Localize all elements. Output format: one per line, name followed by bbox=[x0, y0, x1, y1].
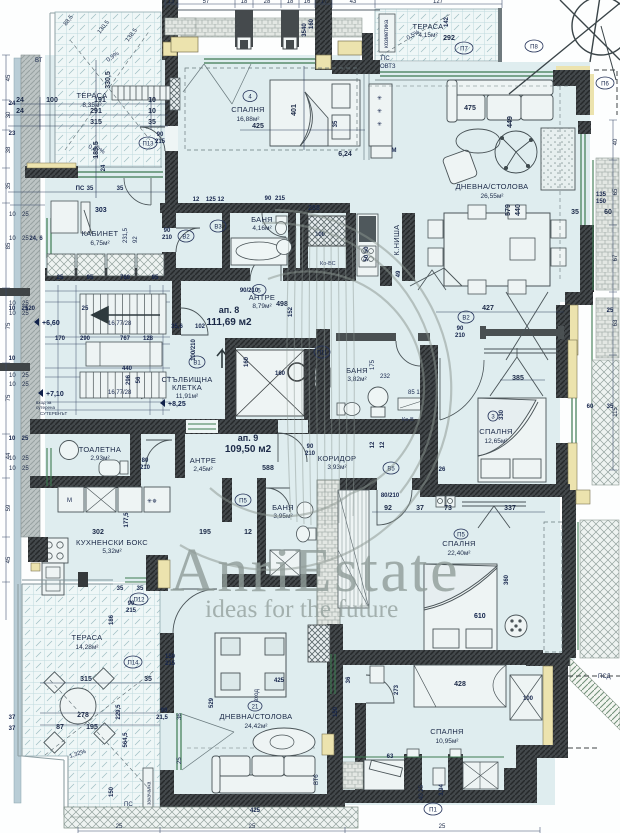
svg-text:35: 35 bbox=[571, 209, 579, 216]
svg-text:40: 40 bbox=[613, 138, 619, 145]
svg-text:23: 23 bbox=[9, 131, 16, 137]
svg-text:288: 288 bbox=[308, 205, 320, 212]
svg-text:3,94: 3,94 bbox=[439, 784, 445, 796]
svg-text:80/210: 80/210 bbox=[381, 493, 400, 499]
svg-text:10: 10 bbox=[148, 97, 156, 104]
svg-text:63: 63 bbox=[387, 754, 394, 760]
svg-text:292: 292 bbox=[443, 35, 455, 42]
svg-text:ПСД: ПСД bbox=[598, 674, 611, 680]
svg-text:ideas for the future: ideas for the future bbox=[205, 594, 398, 623]
svg-text:3540: 3540 bbox=[302, 23, 308, 37]
svg-text:152: 152 bbox=[288, 306, 294, 317]
svg-text:175: 175 bbox=[370, 359, 376, 370]
svg-text:21,5: 21,5 bbox=[156, 715, 168, 721]
svg-text:100: 100 bbox=[523, 696, 534, 702]
svg-text:92: 92 bbox=[384, 505, 392, 512]
svg-text:35: 35 bbox=[148, 119, 156, 126]
svg-text:767: 767 bbox=[120, 336, 131, 342]
svg-text:П8: П8 bbox=[530, 45, 538, 51]
svg-text:✳: ✳ bbox=[377, 95, 382, 102]
svg-text:475: 475 bbox=[464, 105, 476, 112]
svg-text:579: 579 bbox=[505, 204, 512, 216]
svg-text:8,79м²: 8,79м² bbox=[252, 303, 272, 310]
svg-text:25: 25 bbox=[22, 382, 29, 388]
svg-text:25: 25 bbox=[249, 824, 256, 830]
svg-text:П13: П13 bbox=[143, 142, 155, 148]
svg-text:28: 28 bbox=[264, 0, 271, 5]
svg-text:330: 330 bbox=[499, 409, 505, 420]
svg-text:186: 186 bbox=[109, 614, 115, 625]
svg-text:49: 49 bbox=[396, 270, 402, 277]
svg-text:425: 425 bbox=[250, 808, 261, 814]
svg-text:П1: П1 bbox=[429, 808, 437, 814]
svg-text:588: 588 bbox=[262, 465, 274, 472]
svg-text:4,15м²: 4,15м² bbox=[418, 32, 438, 39]
svg-text:10: 10 bbox=[9, 373, 16, 379]
svg-text:✳: ✳ bbox=[377, 121, 382, 128]
svg-text:✳✵: ✳✵ bbox=[147, 498, 157, 505]
svg-text:360: 360 bbox=[504, 574, 510, 585]
svg-text:Ко-ВС: Ко-ВС bbox=[320, 261, 336, 267]
svg-text:5,32м²: 5,32м² bbox=[102, 548, 122, 555]
svg-text:24, 6: 24, 6 bbox=[29, 236, 43, 242]
svg-text:6,75м²: 6,75м² bbox=[90, 240, 110, 247]
svg-text:425: 425 bbox=[274, 678, 285, 684]
svg-text:3,93м²: 3,93м² bbox=[327, 464, 347, 471]
svg-text:12: 12 bbox=[244, 529, 252, 536]
svg-text:П14: П14 bbox=[128, 661, 140, 667]
svg-text:290: 290 bbox=[80, 336, 91, 342]
svg-text:610: 610 bbox=[474, 613, 486, 620]
svg-text:ап. 8: ап. 8 bbox=[219, 305, 239, 315]
svg-text:215: 215 bbox=[275, 196, 286, 202]
svg-text:+6,60: +6,60 bbox=[42, 320, 60, 327]
svg-text:440: 440 bbox=[122, 366, 133, 372]
svg-text:273: 273 bbox=[394, 684, 400, 695]
svg-text:195: 195 bbox=[199, 529, 211, 536]
svg-text:170: 170 bbox=[55, 336, 66, 342]
svg-text:10,95м²: 10,95м² bbox=[436, 738, 460, 745]
svg-text:ДНЕВНА/СТОЛОВА: ДНЕВНА/СТОЛОВА bbox=[456, 182, 529, 191]
svg-text:+7,10: +7,10 bbox=[46, 391, 64, 398]
svg-text:25: 25 bbox=[439, 824, 446, 830]
svg-text:63: 63 bbox=[613, 319, 619, 326]
svg-text:210: 210 bbox=[455, 333, 466, 339]
svg-text:90: 90 bbox=[157, 132, 164, 138]
svg-text:24: 24 bbox=[9, 101, 16, 107]
svg-text:75: 75 bbox=[6, 394, 12, 401]
svg-text:215: 215 bbox=[155, 139, 166, 145]
svg-text:В2: В2 bbox=[462, 316, 470, 322]
svg-text:302: 302 bbox=[92, 529, 104, 536]
svg-text:160: 160 bbox=[244, 356, 250, 367]
svg-text:КАБИНЕТ: КАБИНЕТ bbox=[82, 229, 119, 238]
svg-text:М: М bbox=[392, 148, 397, 154]
svg-text:35: 35 bbox=[117, 186, 124, 192]
svg-text:25: 25 bbox=[22, 236, 29, 242]
svg-text:16,88м²: 16,88м² bbox=[237, 116, 261, 123]
svg-text:✳: ✳ bbox=[377, 108, 382, 115]
svg-text:427: 427 bbox=[482, 305, 494, 312]
svg-text:160: 160 bbox=[309, 18, 315, 29]
svg-text:109,50 м2: 109,50 м2 bbox=[225, 444, 272, 455]
svg-text:210: 210 bbox=[162, 235, 173, 241]
svg-text:ПС: ПС bbox=[76, 186, 85, 192]
svg-text:125 12: 125 12 bbox=[206, 197, 225, 203]
svg-text:ап. 9: ап. 9 bbox=[238, 433, 258, 443]
svg-text:215: 215 bbox=[126, 608, 137, 614]
svg-text:24: 24 bbox=[16, 108, 24, 115]
svg-text:П12: П12 bbox=[134, 598, 146, 604]
svg-text:177,5: 177,5 bbox=[124, 512, 130, 528]
svg-text:43: 43 bbox=[350, 0, 357, 5]
svg-text:142: 142 bbox=[444, 16, 450, 27]
svg-text:25: 25 bbox=[22, 373, 29, 379]
svg-text:37: 37 bbox=[9, 726, 16, 732]
svg-text:35,6: 35,6 bbox=[171, 324, 183, 330]
svg-text:+8,25: +8,25 bbox=[168, 401, 186, 408]
svg-text:150: 150 bbox=[333, 706, 339, 717]
svg-text:56: 56 bbox=[136, 376, 142, 383]
svg-text:25: 25 bbox=[22, 311, 29, 317]
svg-text:40 25: 40 25 bbox=[419, 784, 425, 800]
svg-text:73: 73 bbox=[444, 505, 452, 512]
svg-text:25: 25 bbox=[177, 757, 183, 764]
svg-text:10: 10 bbox=[9, 466, 16, 472]
svg-text:ВТ: ВТ bbox=[35, 58, 43, 64]
svg-text:ПС: ПС bbox=[124, 802, 133, 808]
svg-text:60: 60 bbox=[587, 404, 594, 410]
svg-text:2,93м²: 2,93м² bbox=[90, 455, 110, 462]
svg-text:35: 35 bbox=[117, 586, 124, 592]
svg-text:10: 10 bbox=[9, 212, 16, 218]
svg-text:449: 449 bbox=[507, 116, 514, 128]
svg-text:37: 37 bbox=[9, 715, 16, 721]
svg-text:КОРИДОР: КОРИДОР bbox=[318, 454, 357, 463]
svg-text:90: 90 bbox=[161, 708, 168, 714]
svg-text:87: 87 bbox=[56, 724, 64, 731]
svg-text:35: 35 bbox=[144, 676, 152, 683]
svg-text:80: 80 bbox=[142, 458, 149, 464]
svg-text:24: 24 bbox=[101, 164, 107, 171]
svg-text:ДНЕВНА/СТОЛОВА: ДНЕВНА/СТОЛОВА bbox=[220, 712, 293, 721]
svg-text:115: 115 bbox=[613, 407, 619, 417]
svg-text:425: 425 bbox=[252, 123, 264, 130]
svg-text:ТОАЛЕТНА: ТОАЛЕТНА bbox=[79, 445, 121, 454]
svg-text:ПС: ПС bbox=[381, 56, 390, 62]
svg-text:102: 102 bbox=[195, 324, 206, 330]
svg-text:67: 67 bbox=[613, 254, 619, 261]
svg-text:30: 30 bbox=[6, 111, 12, 118]
svg-text:191: 191 bbox=[94, 97, 106, 104]
svg-text:278: 278 bbox=[77, 712, 89, 719]
svg-text:16,77/28: 16,77/28 bbox=[108, 390, 132, 396]
svg-text:10: 10 bbox=[9, 301, 16, 307]
svg-text:16: 16 bbox=[304, 0, 311, 5]
svg-text:ТЕРАСА: ТЕРАСА bbox=[72, 633, 103, 642]
svg-text:35: 35 bbox=[6, 182, 12, 189]
svg-text:26,55м²: 26,55м² bbox=[481, 193, 505, 200]
svg-text:315: 315 bbox=[90, 119, 102, 126]
svg-text:35: 35 bbox=[87, 186, 94, 192]
svg-text:428: 428 bbox=[454, 681, 466, 688]
svg-text:17: 17 bbox=[321, 0, 328, 5]
svg-text:296: 296 bbox=[126, 374, 132, 385]
svg-text:45: 45 bbox=[6, 556, 12, 563]
svg-text:12: 12 bbox=[380, 441, 386, 448]
svg-text:229,5: 229,5 bbox=[116, 704, 122, 720]
svg-text:127: 127 bbox=[433, 0, 444, 5]
svg-text:75: 75 bbox=[6, 322, 12, 329]
svg-text:В2: В2 bbox=[182, 235, 190, 241]
svg-text:291: 291 bbox=[90, 108, 102, 115]
svg-text:10: 10 bbox=[9, 356, 16, 362]
svg-text:529: 529 bbox=[209, 697, 215, 708]
svg-text:СУТЕРЕНЪТ: СУТЕРЕНЪТ bbox=[40, 411, 68, 416]
svg-text:10: 10 bbox=[9, 311, 16, 317]
svg-text:К.НИША: К.НИША bbox=[392, 225, 401, 256]
svg-text:100/210: 100/210 bbox=[191, 339, 197, 361]
svg-text:11,91м²: 11,91м² bbox=[176, 393, 199, 400]
svg-text:85: 85 bbox=[6, 242, 12, 249]
svg-text:25: 25 bbox=[22, 456, 29, 462]
svg-text:128: 128 bbox=[143, 336, 154, 342]
svg-text:10: 10 bbox=[9, 382, 16, 388]
svg-text:160: 160 bbox=[275, 371, 286, 377]
svg-text:498: 498 bbox=[276, 301, 288, 308]
svg-text:СПАЛНЯ: СПАЛНЯ bbox=[430, 727, 464, 736]
svg-text:4,16м²: 4,16м² bbox=[252, 225, 272, 232]
svg-text:57: 57 bbox=[203, 0, 210, 5]
svg-text:35: 35 bbox=[137, 586, 144, 592]
svg-text:13: 13 bbox=[168, 0, 175, 5]
svg-text:Ко-В: Ко-В bbox=[402, 417, 414, 423]
svg-text:М: М bbox=[67, 498, 72, 504]
svg-text:25: 25 bbox=[22, 301, 29, 307]
svg-text:12: 12 bbox=[370, 441, 376, 448]
svg-text:козметика: козметика bbox=[384, 19, 390, 48]
svg-text:36: 36 bbox=[346, 676, 352, 683]
svg-text:100: 100 bbox=[46, 97, 58, 104]
svg-text:П6: П6 bbox=[601, 82, 609, 88]
svg-text:закачалка: закачалка bbox=[147, 781, 153, 805]
svg-text:44: 44 bbox=[6, 452, 12, 459]
svg-text:В3: В3 bbox=[214, 225, 222, 231]
svg-text:вход: вход bbox=[254, 689, 260, 702]
svg-text:СПАЛНЯ: СПАЛНЯ bbox=[231, 105, 265, 114]
svg-text:59: 59 bbox=[6, 504, 12, 511]
svg-text:25: 25 bbox=[22, 212, 29, 218]
svg-text:10: 10 bbox=[9, 236, 16, 242]
svg-text:35: 35 bbox=[333, 120, 339, 127]
svg-text:10: 10 bbox=[148, 108, 156, 115]
svg-text:195: 195 bbox=[86, 724, 98, 731]
svg-text:25: 25 bbox=[22, 466, 29, 472]
svg-text:37: 37 bbox=[416, 505, 424, 512]
svg-text:150: 150 bbox=[165, 654, 176, 660]
svg-text:26: 26 bbox=[439, 467, 446, 473]
svg-text:25: 25 bbox=[57, 275, 64, 281]
svg-text:16,77/28: 16,77/28 bbox=[108, 321, 132, 327]
svg-text:303: 303 bbox=[95, 207, 107, 214]
svg-text:760: 760 bbox=[120, 275, 131, 281]
svg-text:330,5: 330,5 bbox=[105, 71, 112, 89]
svg-text:95: 95 bbox=[152, 275, 159, 281]
svg-text:95: 95 bbox=[87, 275, 94, 281]
svg-text:90: 90 bbox=[164, 228, 171, 234]
svg-text:210: 210 bbox=[140, 465, 151, 471]
svg-text:П5: П5 bbox=[239, 499, 247, 505]
svg-text:2,45м²: 2,45м² bbox=[193, 466, 213, 473]
svg-text:10: 10 bbox=[9, 436, 16, 442]
svg-text:90: 90 bbox=[128, 601, 135, 607]
svg-text:60: 60 bbox=[604, 209, 612, 216]
svg-text:18: 18 bbox=[287, 0, 294, 5]
svg-text:ВТ6: ВТ6 bbox=[314, 774, 320, 785]
svg-text:232: 232 bbox=[380, 374, 391, 380]
svg-text:90/210: 90/210 bbox=[240, 288, 259, 294]
svg-text:25: 25 bbox=[22, 436, 29, 442]
svg-text:92: 92 bbox=[133, 236, 139, 243]
svg-text:БАНЯ: БАНЯ bbox=[346, 366, 368, 375]
svg-text:337: 337 bbox=[504, 505, 516, 512]
svg-text:6,24: 6,24 bbox=[338, 151, 352, 158]
svg-text:25: 25 bbox=[116, 824, 123, 830]
svg-text:21: 21 bbox=[252, 705, 259, 711]
svg-text:564,5: 564,5 bbox=[123, 732, 129, 748]
svg-text:3,82м²: 3,82м² bbox=[347, 376, 367, 383]
svg-text:315: 315 bbox=[80, 676, 92, 683]
svg-text:КЛЕТКА: КЛЕТКА bbox=[172, 383, 202, 392]
svg-text:385: 385 bbox=[512, 375, 524, 382]
svg-text:38: 38 bbox=[6, 146, 12, 153]
svg-text:АНТРЕ: АНТРЕ bbox=[190, 456, 217, 465]
svg-text:12,65м²: 12,65м² bbox=[485, 438, 509, 445]
svg-text:45: 45 bbox=[6, 74, 12, 81]
svg-text:18: 18 bbox=[241, 0, 248, 5]
svg-text:АНТРЕ: АНТРЕ bbox=[249, 293, 276, 302]
svg-text:111,69 м2: 111,69 м2 bbox=[206, 317, 252, 328]
svg-text:135: 135 bbox=[596, 192, 607, 198]
svg-text:65: 65 bbox=[613, 188, 619, 195]
svg-text:440: 440 bbox=[515, 204, 522, 216]
svg-text:СПАЛНЯ: СПАЛНЯ bbox=[479, 427, 513, 436]
svg-text:25: 25 bbox=[82, 306, 89, 312]
svg-text:150: 150 bbox=[596, 199, 607, 205]
svg-text:215: 215 bbox=[165, 661, 176, 667]
svg-text:П7: П7 bbox=[460, 47, 468, 53]
svg-text:КУХНЕНСКИ БОКС: КУХНЕНСКИ БОКС bbox=[76, 538, 148, 547]
svg-text:231,5: 231,5 bbox=[123, 227, 129, 243]
svg-text:36: 36 bbox=[177, 713, 183, 720]
svg-text:П11: П11 bbox=[317, 351, 328, 357]
svg-text:24,42м²: 24,42м² bbox=[245, 723, 269, 730]
svg-text:сутерена: сутерена bbox=[36, 405, 56, 410]
svg-text:24: 24 bbox=[16, 97, 24, 104]
svg-text:14,28м²: 14,28м² bbox=[76, 644, 100, 651]
svg-text:90: 90 bbox=[265, 196, 272, 202]
svg-text:12: 12 bbox=[193, 197, 200, 203]
svg-text:401: 401 bbox=[291, 104, 298, 116]
svg-text:ОВТЗ: ОВТЗ bbox=[380, 64, 396, 70]
svg-text:150: 150 bbox=[109, 786, 115, 797]
svg-text:90: 90 bbox=[457, 326, 464, 332]
